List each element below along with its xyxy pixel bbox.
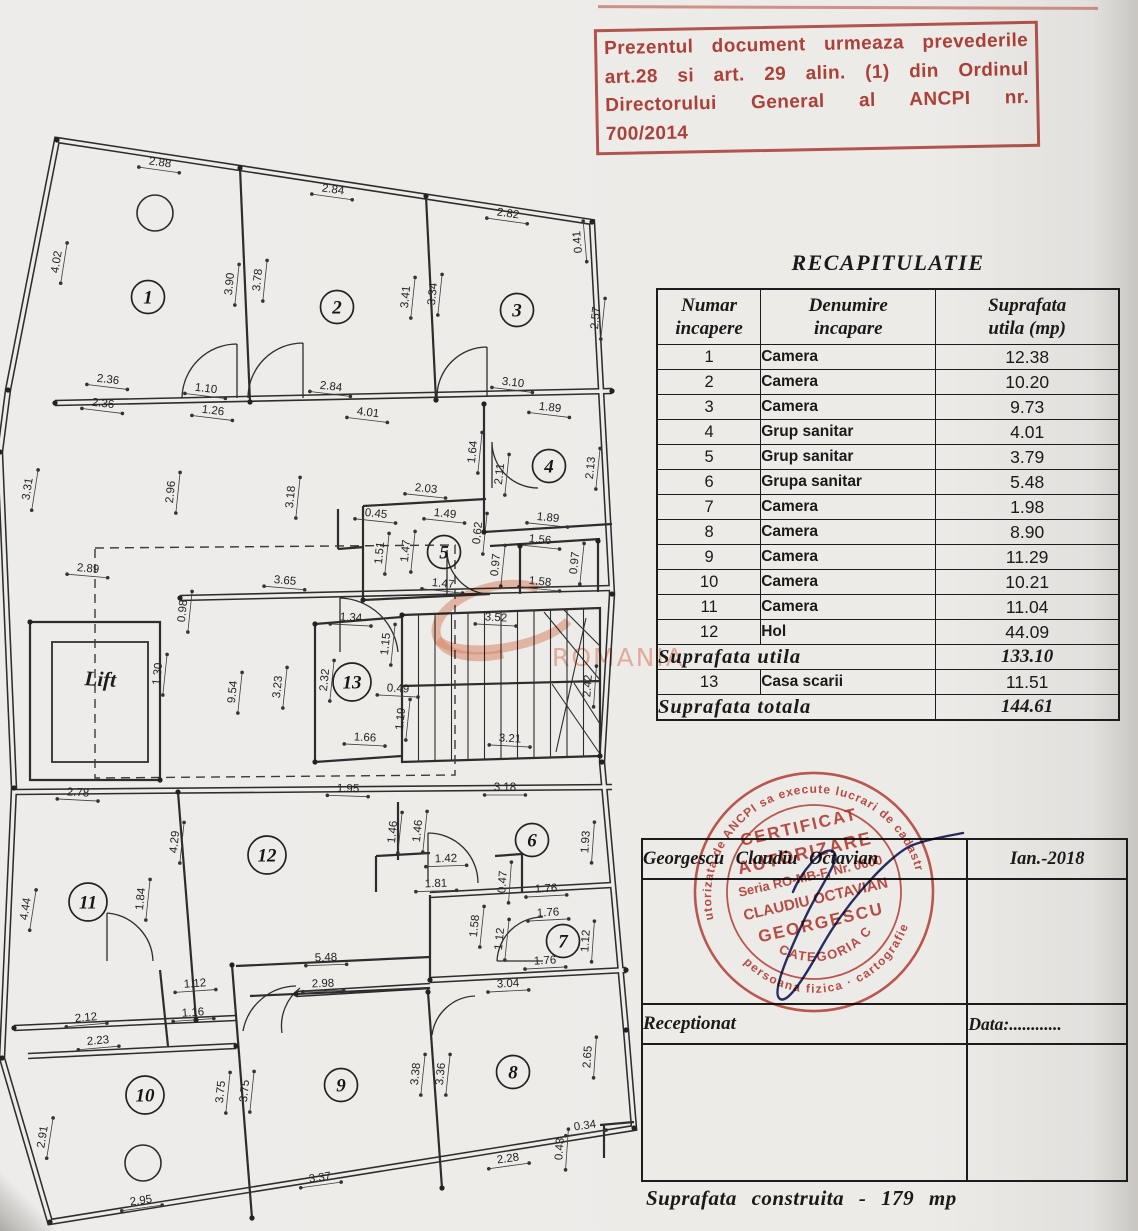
dimension: 4.44 <box>17 886 39 932</box>
room-number-cell: 13 <box>657 670 761 695</box>
document-date: Ian.-2018 <box>967 839 1127 879</box>
room-number: 9 <box>325 1069 358 1102</box>
dimension-label: 3.90 <box>223 272 237 296</box>
dimension: 3.23 <box>270 664 289 710</box>
dimension: 1.12 <box>172 976 217 994</box>
page-corner-shadow <box>0 1150 55 1231</box>
room-area-cell: 12.38 <box>936 345 1119 370</box>
room-name-cell: Camera <box>761 595 936 620</box>
room-name-cell: Hol <box>761 620 936 645</box>
dimension-label: 2.98 <box>312 978 335 991</box>
dimension-label: 1.56 <box>528 533 552 547</box>
dimension-label: 3.75 <box>214 1080 228 1104</box>
empty-cell <box>642 1044 967 1181</box>
room-number: 10 <box>126 1076 164 1114</box>
room-number-label: 13 <box>343 673 362 694</box>
dimension-label: 1.42 <box>435 853 458 866</box>
dimension: 1.12 <box>578 918 596 963</box>
dimension: 3.31 <box>19 466 41 512</box>
dimension-label: 9.54 <box>226 680 240 704</box>
dimension-label: 2.12 <box>74 1011 97 1025</box>
table-row: 2Camera10.20 <box>657 370 1119 395</box>
dimension-label: 2.03 <box>414 482 438 496</box>
dimension-label: 1.81 <box>425 878 448 891</box>
total-value: 144.61 <box>936 695 1119 721</box>
recap-title: RECAPITULATIE <box>656 250 1120 276</box>
dimension-label: 2.13 <box>584 456 598 480</box>
dimension-label: 3.34 <box>426 282 440 306</box>
room-number: 7 <box>547 925 580 958</box>
room-number-label: 4 <box>543 457 554 478</box>
dimension-label: 2.88 <box>148 156 172 171</box>
room-area-cell: 4.01 <box>936 420 1119 445</box>
dimension: 3.34 <box>425 271 444 317</box>
col-header-suprafata: Suprafatautila (mp) <box>936 289 1119 345</box>
room-number-cell: 10 <box>657 570 761 595</box>
dimension-label: 1.49 <box>433 507 457 521</box>
table-row: 11Camera11.04 <box>657 595 1119 620</box>
dimension-label: 1.76 <box>537 906 560 919</box>
room-area-cell: 44.09 <box>936 620 1119 645</box>
walls-single <box>30 168 634 1218</box>
room-number-cell: 7 <box>657 495 761 520</box>
dimension: 3.90 <box>222 261 241 307</box>
dimension-label: 0.98 <box>176 599 190 623</box>
dimension: 3.18 <box>283 474 302 520</box>
dimension-label: 2.36 <box>91 397 115 412</box>
room-number-label: 10 <box>136 1086 156 1107</box>
dimension-label: 1.84 <box>134 887 148 911</box>
dimension-label: 1.51 <box>373 541 387 565</box>
dimension-label: 1.76 <box>534 954 557 967</box>
recap-body: 1Camera12.382Camera10.203Camera9.734Grup… <box>657 345 1119 645</box>
dimension-label: 3.78 <box>251 268 265 292</box>
dimension: 2.96 <box>163 469 182 515</box>
dimension: 2.65 <box>580 1034 598 1079</box>
dimension: 1.76 <box>526 906 571 923</box>
legal-provision-stamp: Prezentul document urmeaza prevederile a… <box>594 21 1040 156</box>
room-number-label: 6 <box>527 831 537 852</box>
dimension-label: 2.32 <box>318 668 332 692</box>
dimension-label: 0.41 <box>571 230 585 253</box>
room-number-cell: 8 <box>657 520 761 545</box>
room-number-label: 8 <box>508 1063 518 1084</box>
stamp-edge-line <box>598 5 1098 9</box>
table-row: 8Camera8.90 <box>657 520 1119 545</box>
room-name-cell: Camera <box>761 495 936 520</box>
table-row: 5Grup sanitar3.79 <box>657 445 1119 470</box>
room-number-label: 5 <box>439 543 449 564</box>
dimension-label: 1.93 <box>579 830 593 853</box>
dimension-label: 1.47 <box>399 539 413 563</box>
dimension: 1.15 <box>378 621 397 667</box>
table-row: 6Grupa sanitar5.48 <box>657 470 1119 495</box>
room-area-cell: 9.73 <box>936 395 1119 420</box>
dimension: 1.51 <box>372 530 391 576</box>
dimension-label: 1.19 <box>394 707 408 731</box>
dimension: 2.03 <box>403 481 449 500</box>
dimension: 5.48 <box>304 951 349 967</box>
dimension-label: 1.12 <box>579 929 593 952</box>
dimension-label: 1.46 <box>411 819 425 843</box>
room-area-cell: 3.79 <box>936 445 1119 470</box>
dimension-label: 3.18 <box>494 782 516 794</box>
room-area-cell: 10.20 <box>936 370 1119 395</box>
dimension: 3.78 <box>250 257 269 303</box>
room-number-label: 7 <box>558 932 569 953</box>
dimension-label: 1.30 <box>151 662 165 686</box>
room-name-cell: Grupa sanitar <box>761 470 936 495</box>
room-number-cell: 11 <box>657 595 761 620</box>
dimension: 0.43 <box>552 1126 570 1171</box>
room-area-cell: 11.51 <box>936 670 1119 695</box>
room-number-label: 2 <box>331 298 342 319</box>
room-number-cell: 1 <box>657 345 761 370</box>
total-label: Suprafata totala <box>657 695 936 721</box>
total-row: Suprafata totala 144.61 <box>657 695 1119 721</box>
dimension: 2.13 <box>583 445 602 491</box>
table-row: 4Grup sanitar4.01 <box>657 420 1119 445</box>
dimension-label: 2.65 <box>581 1045 595 1068</box>
dimension-label: 0.47 <box>496 870 510 893</box>
dimension-label: 0.45 <box>364 507 388 521</box>
room-number-label: 1 <box>143 288 153 309</box>
dimension-label: 1.46 <box>386 820 400 844</box>
table-row: 13 Casa scarii 11.51 <box>657 670 1119 695</box>
dimension-label: 2.57 <box>589 306 603 330</box>
room-number-cell: 2 <box>657 370 761 395</box>
room-number: 2 <box>321 291 354 324</box>
dimension: 1.93 <box>578 819 596 864</box>
dimension-label: 2.11 <box>493 463 507 486</box>
dimension: 3.75 <box>213 1069 232 1115</box>
subtotal-value: 133.10 <box>936 645 1119 670</box>
dimension-label: 3.10 <box>501 376 525 391</box>
dimension-label: 3.18 <box>284 485 298 509</box>
dimension-label: 1.15 <box>379 632 393 656</box>
dimension: 1.84 <box>133 876 152 922</box>
room-number-label: 9 <box>336 1076 346 1097</box>
room-number-cell: 4 <box>657 420 761 445</box>
dimension-label: 1.66 <box>354 731 377 744</box>
dimension: 1.46 <box>385 809 404 855</box>
dimension: 1.66 <box>342 731 387 748</box>
table-row: 10Camera10.21 <box>657 570 1119 595</box>
dimension-label: 1.16 <box>181 1006 204 1020</box>
dimension-label: 3.41 <box>399 285 413 309</box>
dimension: 0.41 <box>570 219 589 265</box>
dimension: 2.89 <box>65 561 111 580</box>
room-area-cell: 10.21 <box>936 570 1119 595</box>
dimension-label: 2.96 <box>164 480 178 504</box>
dimension: 4.02 <box>48 239 70 285</box>
room-number-cell: 5 <box>657 445 761 470</box>
dimension-label: 1.12 <box>183 977 206 991</box>
room-number: 3 <box>501 294 534 327</box>
table-row: 12Hol44.09 <box>657 620 1119 645</box>
room-number: 13 <box>333 663 371 701</box>
dimension-label: 2.84 <box>319 380 343 395</box>
room-number: 12 <box>248 836 286 874</box>
room-number-cell: 3 <box>657 395 761 420</box>
room-name-cell: Grup sanitar <box>761 420 936 445</box>
room-name-cell: Camera <box>761 395 936 420</box>
dimension-label: 3.65 <box>273 574 296 588</box>
dimension-label: 1.95 <box>337 783 360 796</box>
room-name-cell: Camera <box>761 520 936 545</box>
dimension: 4.01 <box>345 404 391 424</box>
empty-cell <box>967 1044 1127 1181</box>
room-number-label: 3 <box>511 301 522 322</box>
dimension-label: 1.58 <box>468 914 482 938</box>
dimension: 3.21 <box>487 732 532 749</box>
room-name-cell: Grup sanitar <box>761 445 936 470</box>
dimension: 1.26 <box>190 402 236 422</box>
room-area-cell: 11.04 <box>936 595 1119 620</box>
dimension-label: 2.89 <box>76 562 99 576</box>
room-number-label: 11 <box>79 893 97 914</box>
room-number: 4 <box>533 450 566 483</box>
room-name-cell: Camera <box>761 570 936 595</box>
room-number-cell: 12 <box>657 620 761 645</box>
room-area-cell: 1.98 <box>936 495 1119 520</box>
dimension-label: 2.82 <box>496 207 520 222</box>
dimension-label: 3.36 <box>434 1062 448 1086</box>
recap-table: Numarincapere Denumireincapare Suprafata… <box>656 288 1120 721</box>
room-name-cell: Camera <box>761 345 936 370</box>
dimension: 2.36 <box>85 371 131 391</box>
room-number-cell: 9 <box>657 545 761 570</box>
table-row: 3Camera9.73 <box>657 395 1119 420</box>
room-number: 6 <box>516 824 549 857</box>
dimension: 3.38 <box>408 1051 427 1097</box>
empty-cell <box>967 879 1127 1004</box>
col-header-numar: Numarincapere <box>657 289 761 345</box>
dimension-label: 4.29 <box>168 830 182 854</box>
room-name-cell: Camera <box>761 545 936 570</box>
dimension-label: 1.12 <box>493 927 507 951</box>
dimension: 1.42 <box>424 852 469 868</box>
dimension: 3.41 <box>398 274 417 320</box>
col-header-denumire: Denumireincapare <box>761 289 936 345</box>
dimension: 1.76 <box>523 954 568 971</box>
scanned-cadastral-document: { "top_stamp": { "line1": "Prezentul doc… <box>0 0 1138 1231</box>
dimension-label: 1.89 <box>536 511 560 525</box>
room-area-cell: 5.48 <box>936 470 1119 495</box>
data-label: Data:............ <box>967 1004 1127 1044</box>
room-number: 8 <box>497 1056 530 1089</box>
dimension-label: 0.43 <box>553 1137 567 1160</box>
dimension-label: 3.38 <box>409 1062 423 1086</box>
room-number: 11 <box>69 883 107 921</box>
dimension: 0.45 <box>353 506 399 525</box>
dimension-label: 1.89 <box>538 401 562 416</box>
dimension: 1.49 <box>422 506 468 525</box>
table-row: 7Camera1.98 <box>657 495 1119 520</box>
dimension-label: 3.21 <box>499 732 522 745</box>
room-number: 1 <box>132 281 165 314</box>
dimension-label: 5.48 <box>315 952 338 965</box>
dimension-label: 3.23 <box>271 675 285 699</box>
room-name-cell: Casa scarii <box>761 670 936 695</box>
dimension: 1.58 <box>467 903 486 949</box>
table-row: 1Camera12.38 <box>657 345 1119 370</box>
lift-label: Lift <box>83 666 118 692</box>
dimension-label: 1.10 <box>194 382 218 397</box>
dimension: 0.47 <box>495 859 513 904</box>
dimension-label: 2.36 <box>96 373 120 388</box>
dimension-label: 1.26 <box>201 404 225 419</box>
dimension-label: 3.75 <box>238 1079 252 1103</box>
dimension-label: 4.01 <box>356 406 380 421</box>
subtotal-row: Suprafata utila 133.10 <box>657 645 1119 670</box>
recap-header-row: Numarincapere Denumireincapare Suprafata… <box>657 289 1119 345</box>
dimension-label: 1.76 <box>535 882 558 895</box>
dimension-label: 2.28 <box>496 1152 520 1167</box>
dimension: 1.12 <box>492 916 511 962</box>
dimension-label: 1.34 <box>340 611 364 624</box>
dimension: 9.54 <box>225 669 244 715</box>
room-area-cell: 8.90 <box>936 520 1119 545</box>
dimension-label: 2.84 <box>321 183 345 198</box>
dimension: 1.89 <box>527 399 573 419</box>
room-name-cell: Camera <box>761 370 936 395</box>
dimension-label: 3.04 <box>497 977 521 990</box>
room-number-label: 12 <box>258 846 278 867</box>
room-number-cell: 6 <box>657 470 761 495</box>
dimension: 1.46 <box>410 808 429 854</box>
dimension-label: 2.23 <box>86 1034 109 1048</box>
table-row: 9Camera11.29 <box>657 545 1119 570</box>
dimension-label: 1.64 <box>466 440 480 464</box>
room-area-cell: 11.29 <box>936 545 1119 570</box>
built-area-note: Suprafata construita - 179 mp <box>646 1186 957 1211</box>
dimension: 3.65 <box>262 573 308 592</box>
subtotal-label: Suprafata utila <box>657 645 936 670</box>
dimension: 1.64 <box>465 429 484 475</box>
dimension-label: 0.49 <box>387 682 410 695</box>
dimension-label: 2.78 <box>67 786 90 799</box>
dimension-label: 3.37 <box>308 1171 332 1186</box>
